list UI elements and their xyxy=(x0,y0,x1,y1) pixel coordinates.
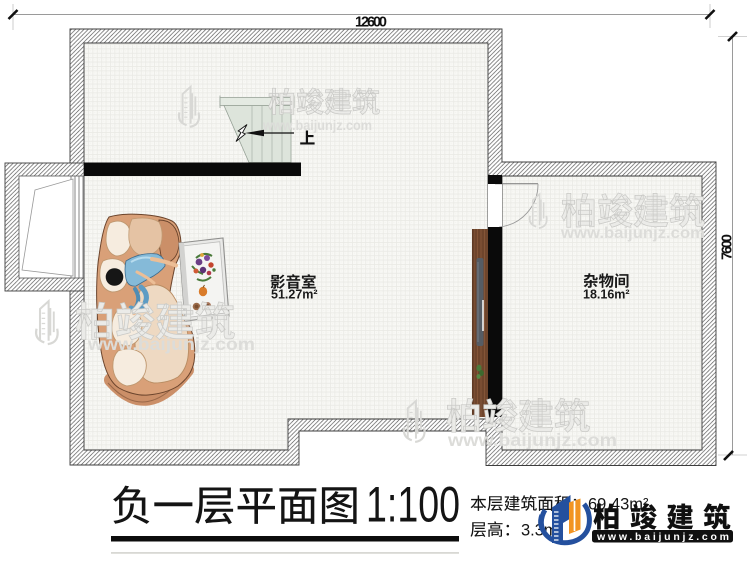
svg-text:51.27m²: 51.27m² xyxy=(271,288,318,302)
svg-text:www.baijunjz.com: www.baijunjz.com xyxy=(447,430,617,450)
svg-text:www.baijunjz.com: www.baijunjz.com xyxy=(87,334,255,354)
svg-text:1:100: 1:100 xyxy=(366,477,460,533)
svg-text:12600: 12600 xyxy=(355,15,387,31)
svg-text:www.baijunjz.com: www.baijunjz.com xyxy=(560,225,705,242)
svg-text:7600: 7600 xyxy=(720,234,736,260)
svg-text:www.baijunjz.com: www.baijunjz.com xyxy=(262,117,372,133)
svg-text:18.16m²: 18.16m² xyxy=(583,288,630,302)
